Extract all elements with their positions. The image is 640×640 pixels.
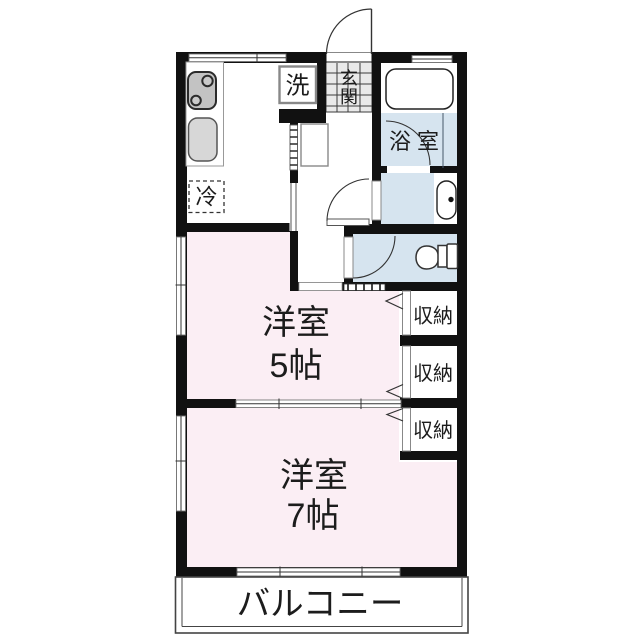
svg-text:洗: 洗 (286, 73, 310, 100)
svg-text:関: 関 (340, 87, 358, 107)
svg-text:収納: 収納 (413, 419, 453, 442)
svg-text:洋室: 洋室 (280, 457, 348, 495)
svg-text:バルコニー: バルコニー (237, 586, 404, 623)
svg-text:7帖: 7帖 (287, 497, 340, 535)
svg-text:冷: 冷 (195, 185, 217, 210)
svg-text:収納: 収納 (413, 305, 453, 328)
svg-text:玄: 玄 (340, 69, 358, 89)
svg-text:5帖: 5帖 (270, 347, 323, 385)
svg-text:浴室: 浴室 (389, 129, 445, 154)
svg-text:洋室: 洋室 (262, 304, 330, 342)
svg-text:収納: 収納 (413, 362, 453, 385)
